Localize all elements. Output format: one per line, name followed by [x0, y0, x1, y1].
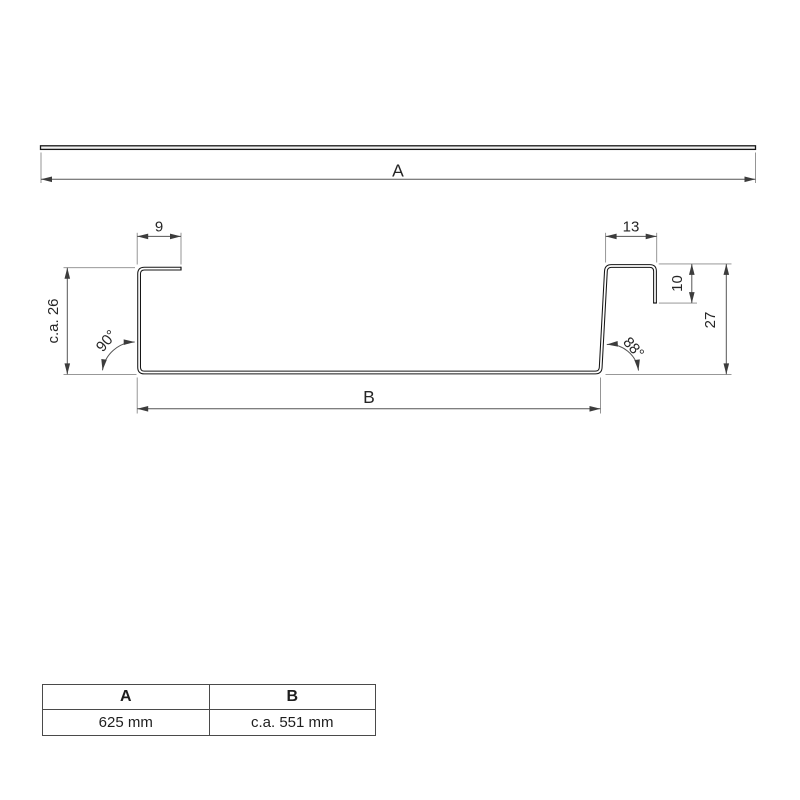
angle-88-right: 88° — [607, 334, 647, 371]
angle-90-left: 90° — [93, 327, 135, 370]
dimension-right-lip-13: 13 — [606, 219, 657, 263]
sheet-strip-rect — [41, 146, 756, 150]
profile-outline-inner — [139, 266, 655, 373]
profile-dimension-drawing: A 9 13 c.a. 26 — [0, 0, 800, 800]
flat-sheet-strip — [41, 146, 756, 150]
dimension-B: B — [137, 378, 600, 414]
dim-26-label: c.a. 26 — [45, 298, 62, 343]
angle-88-label: 88° — [619, 334, 647, 362]
dim-a-label: A — [392, 161, 404, 181]
dimension-right-return-10: 10 — [659, 264, 732, 303]
dim-b-label: B — [363, 387, 375, 407]
dimension-left-height-ca26: c.a. 26 — [45, 268, 137, 375]
profile-outline-outer — [139, 266, 655, 373]
table-value-row: 625 mm c.a. 551 mm — [43, 710, 376, 736]
table-header-b: B — [209, 685, 376, 710]
table-value-a: 625 mm — [43, 710, 210, 736]
dimensions-table-container: A B 625 mm c.a. 551 mm — [42, 684, 376, 736]
dim-13-label: 13 — [623, 219, 640, 236]
profile-cross-section — [139, 266, 657, 373]
dimensions-table: A B 625 mm c.a. 551 mm — [42, 684, 376, 736]
technical-drawing-page: A 9 13 c.a. 26 — [0, 0, 800, 800]
table-header-a: A — [43, 685, 210, 710]
angle-90-label: 90° — [93, 327, 121, 355]
dim-10-label: 10 — [669, 275, 686, 292]
table-value-b: c.a. 551 mm — [209, 710, 376, 736]
dim-9-label: 9 — [155, 219, 163, 236]
table-header-row: A B — [43, 685, 376, 710]
dimension-left-lip-9: 9 — [137, 219, 181, 265]
dimension-A: A — [41, 153, 756, 184]
dim-27-label: 27 — [702, 312, 719, 329]
